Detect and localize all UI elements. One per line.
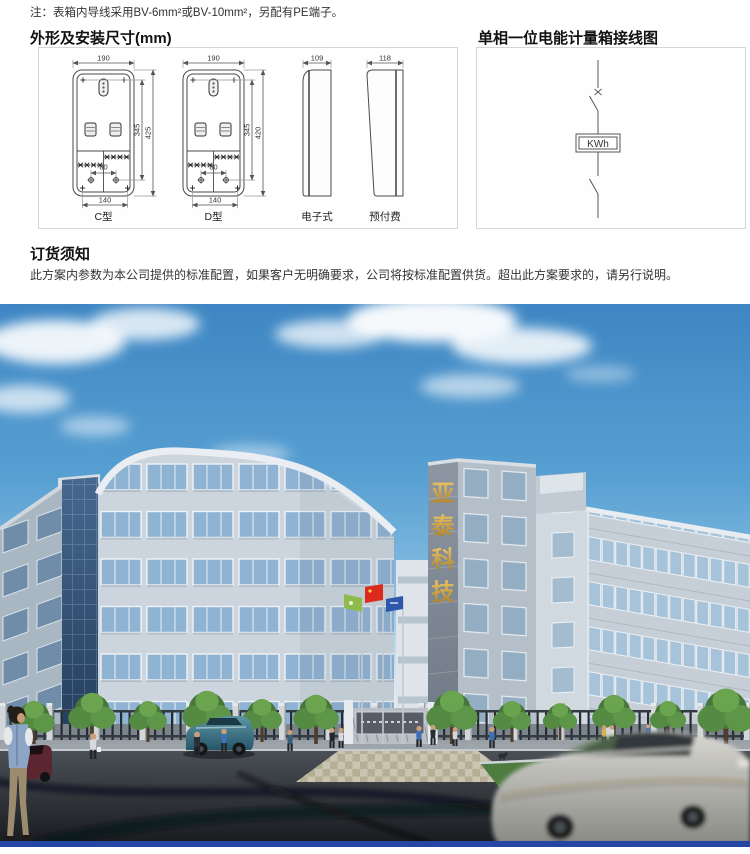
dimension-drawings-panel: 190 345 425 80 140 C型 bbox=[38, 47, 458, 229]
drawing-label: C型 bbox=[94, 210, 112, 223]
dim-label: 118 bbox=[379, 54, 391, 63]
drawing-label: 预付费 bbox=[369, 210, 401, 223]
dimension-drawings: 190 345 425 80 140 C型 bbox=[39, 48, 457, 228]
drawing-electronic-side: 109 电子式 bbox=[301, 54, 333, 224]
catalog-page: 注：表箱内导线采用BV-6mm²或BV-10mm²，另配有PE端子。 外形及安装… bbox=[0, 0, 750, 854]
dim-label: 80 bbox=[99, 163, 107, 172]
drawing-d-type: 190 345 420 80 140 D型 bbox=[183, 54, 266, 224]
dimensions-title: 外形及安装尺寸(mm) bbox=[30, 27, 172, 48]
drawing-c-type: 190 345 425 80 140 C型 bbox=[73, 54, 156, 224]
tower-sign-char-4: 技 bbox=[432, 580, 456, 605]
dim-label: 420 bbox=[254, 127, 263, 140]
company-gate-sign bbox=[356, 712, 424, 734]
dim-label: 140 bbox=[209, 196, 222, 205]
tower-sign-char-2: 泰 bbox=[431, 513, 456, 539]
wiring-diagram: KWh bbox=[477, 48, 745, 228]
dim-label: 345 bbox=[133, 124, 142, 137]
meter-label: KWh bbox=[587, 139, 609, 150]
dim-label: 345 bbox=[243, 124, 252, 137]
china-flag bbox=[365, 584, 383, 603]
order-notes-title: 订货须知 bbox=[30, 243, 90, 264]
wiring-note: 注：表箱内导线采用BV-6mm²或BV-10mm²，另配有PE端子。 bbox=[30, 4, 343, 20]
breaker-switch bbox=[590, 96, 599, 134]
order-notes-body: 此方案内参数为本公司提供的标准配置，如果客户无明确要求，公司将按标准配置供货。超… bbox=[30, 266, 730, 283]
dim-label: 109 bbox=[311, 54, 324, 63]
wiring-title: 单相一位电能计量箱接线图 bbox=[478, 27, 658, 48]
tower-sign-char-1: 亚 bbox=[432, 481, 455, 506]
drawing-prepaid-side: 118 预付费 bbox=[367, 54, 403, 224]
dim-label: 80 bbox=[209, 163, 217, 172]
dim-label: 190 bbox=[97, 54, 110, 63]
tower-sign-char-3: 科 bbox=[432, 547, 455, 572]
drawing-label: 电子式 bbox=[301, 210, 333, 223]
company-building-photo: 亚 泰 科 技 bbox=[0, 304, 750, 847]
fuse-mark bbox=[595, 89, 602, 95]
wiring-diagram-panel: KWh bbox=[476, 47, 746, 229]
dim-label: 190 bbox=[207, 54, 220, 63]
dim-label: 425 bbox=[144, 127, 153, 140]
load-switch bbox=[590, 179, 599, 218]
drawing-label: D型 bbox=[204, 210, 222, 223]
dim-label: 140 bbox=[99, 196, 112, 205]
footer-accent-bar bbox=[0, 841, 750, 847]
building-illustration: 亚 泰 科 技 bbox=[0, 304, 750, 847]
